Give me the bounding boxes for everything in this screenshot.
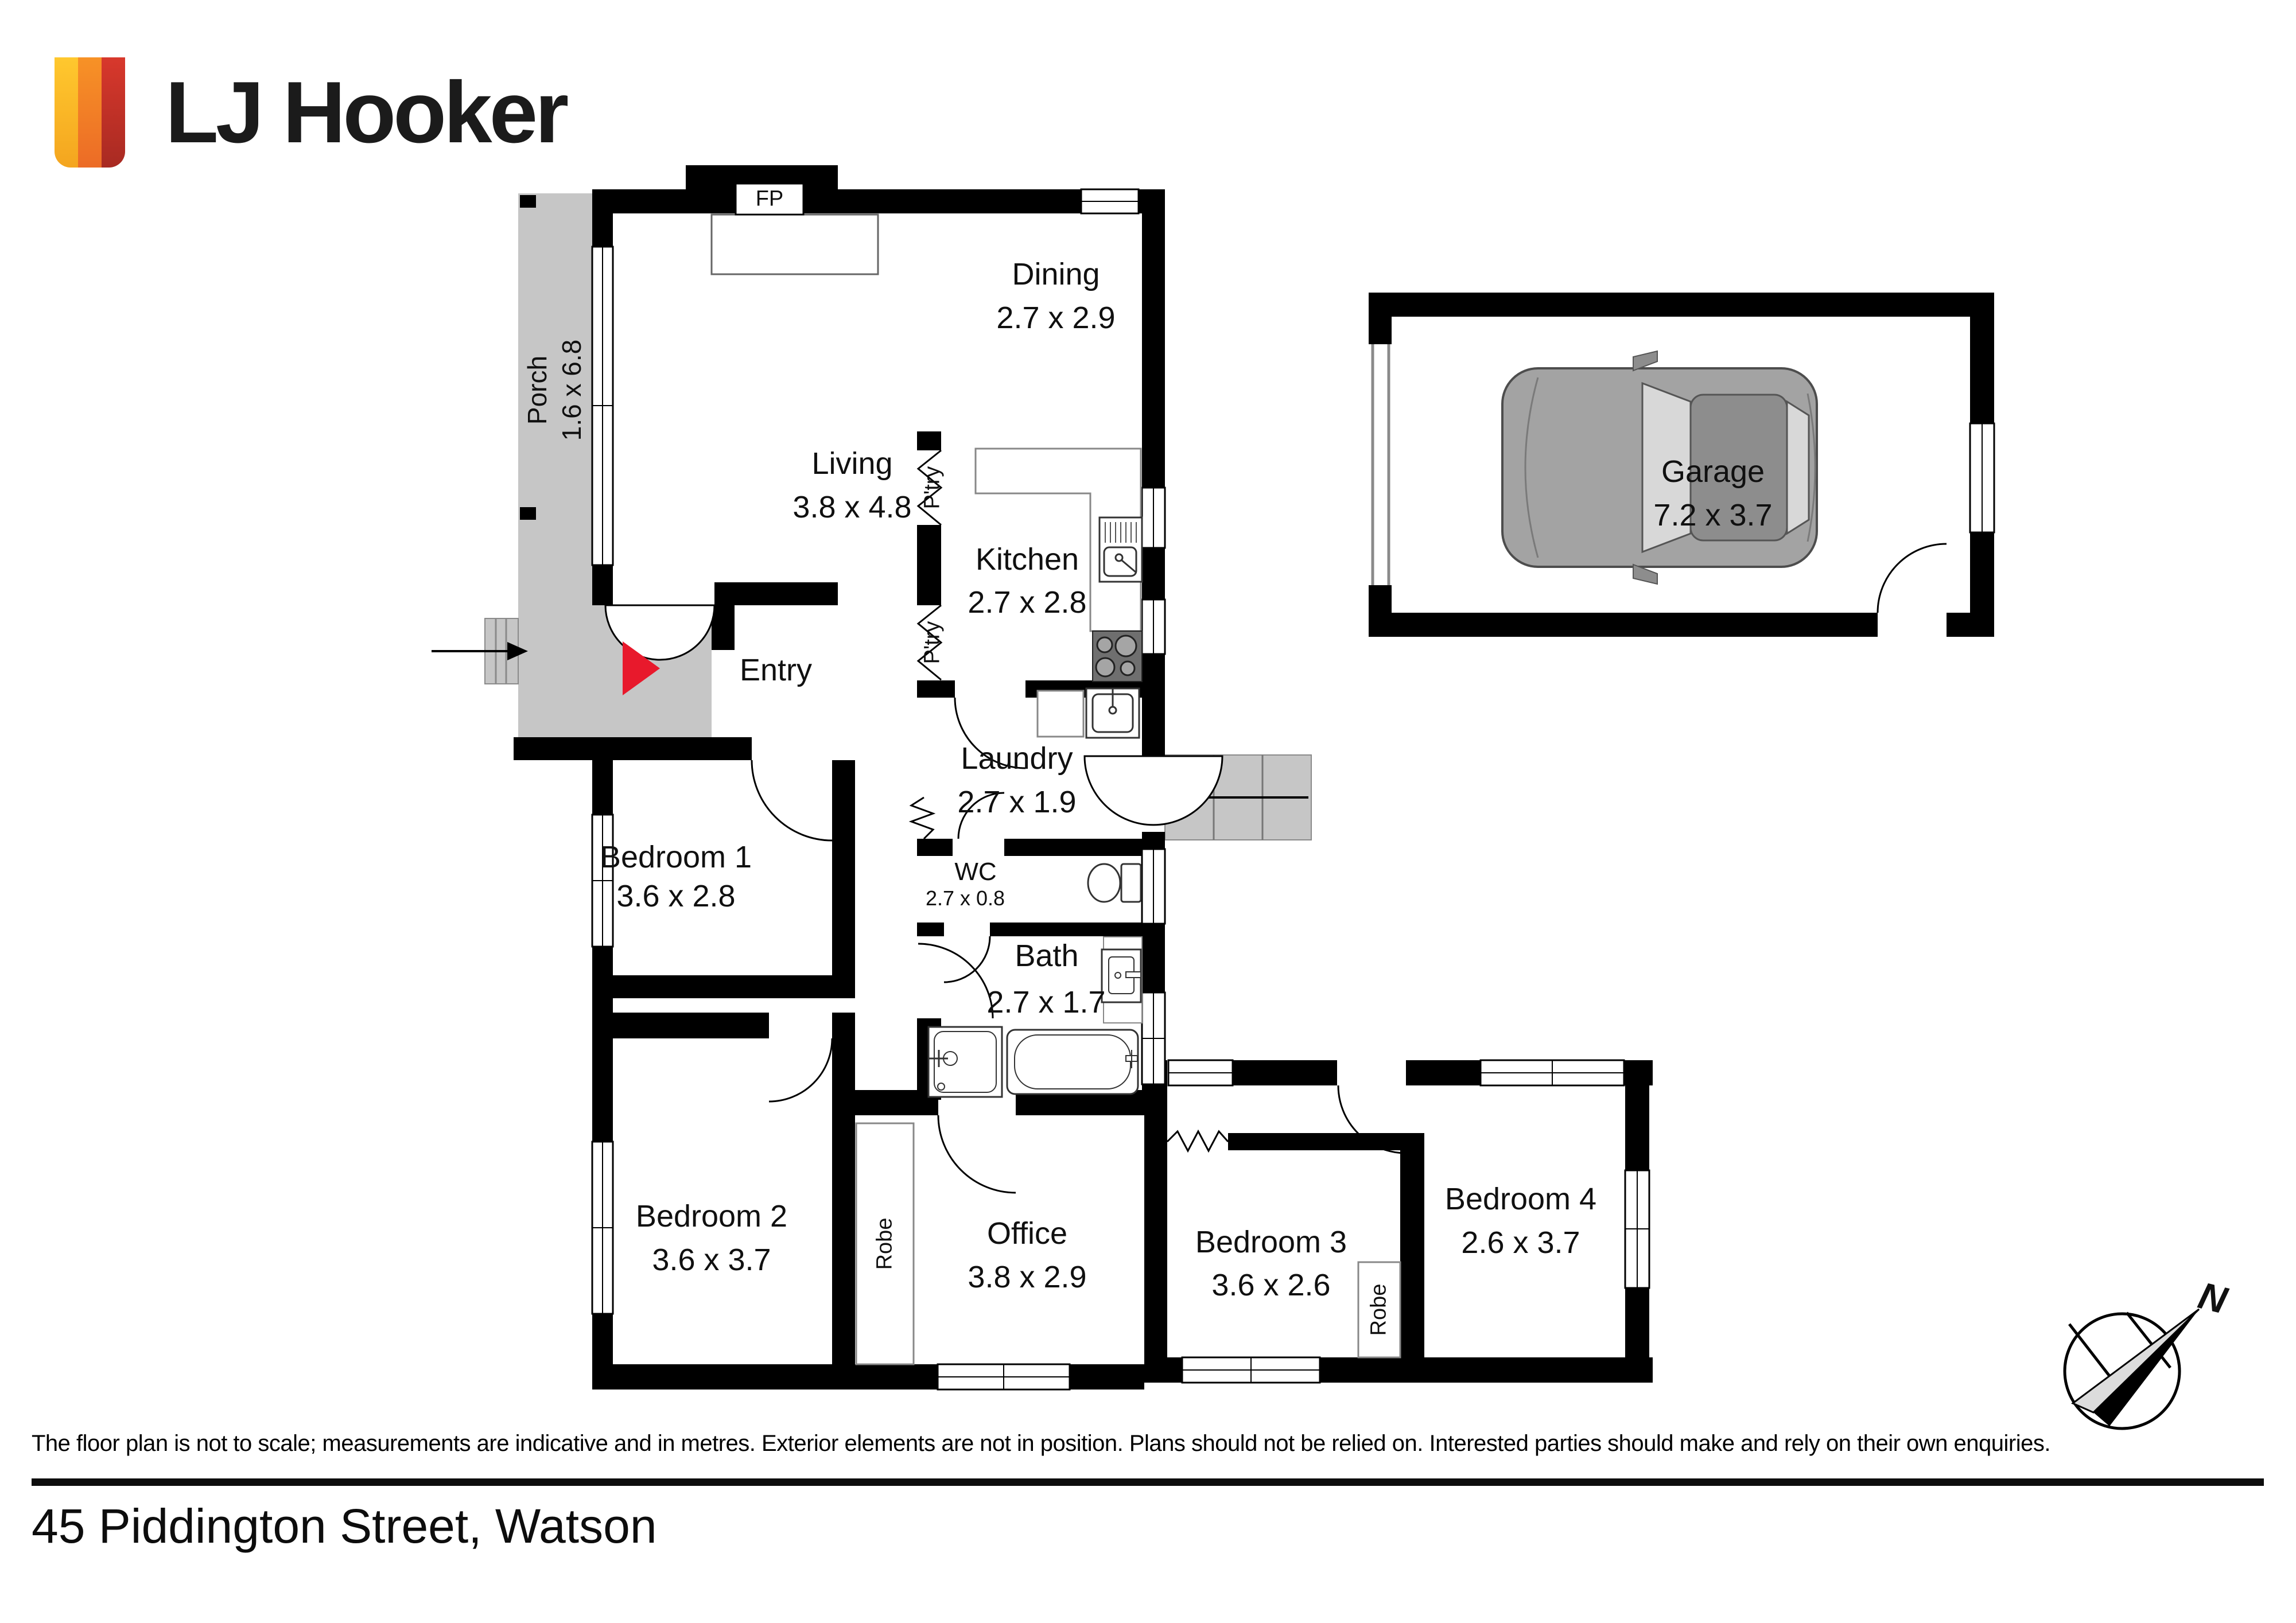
- room-dims-bath: 2.7 x 1.7: [986, 984, 1105, 1020]
- wall-top: [592, 189, 1165, 213]
- wall-kitchen-west-stub: [917, 431, 941, 450]
- porch-slab: [518, 193, 592, 737]
- window-bed1-west: [592, 815, 613, 947]
- room-label-porch: Porch 1.6 x 6.8: [520, 340, 589, 441]
- wall-bed1-east: [832, 760, 855, 998]
- window-hall-north: [1168, 1060, 1233, 1085]
- room-dims-bedroom1: 3.6 x 2.8: [616, 878, 735, 914]
- room-label-garage: Garage: [1661, 454, 1765, 489]
- wall-laundry-south: [917, 839, 953, 856]
- doors: [605, 544, 1947, 1193]
- room-label-bath: Bath: [1015, 938, 1078, 974]
- window-living-west: [592, 247, 613, 565]
- toilet-icon: [1088, 864, 1141, 902]
- room-dims-bedroom2: 3.6 x 3.7: [652, 1242, 771, 1278]
- window-office-south: [938, 1364, 1070, 1390]
- room-label-bedroom2: Bedroom 2: [636, 1198, 787, 1234]
- room-label-bedroom3: Bedroom 3: [1195, 1224, 1347, 1260]
- wall-bed4-west: [1400, 1133, 1424, 1383]
- room-label-wc: WC: [954, 858, 996, 886]
- stove-icon: [1093, 631, 1142, 682]
- room-dims-living: 3.8 x 4.8: [792, 489, 911, 525]
- wall-bed2-north: [592, 1013, 769, 1038]
- porch-post: [520, 195, 536, 208]
- wall-garage-west-stub: [1369, 317, 1392, 344]
- room-dims-garage: 7.2 x 3.7: [1653, 497, 1772, 533]
- porch-dims: 1.6 x 6.8: [554, 340, 589, 441]
- window-bath-east: [1142, 993, 1165, 1084]
- car-rear-window: [1787, 402, 1809, 534]
- door-arc-office: [938, 1115, 1016, 1193]
- wall-kitchen-west: [917, 525, 941, 605]
- room-label-entry: Entry: [740, 652, 812, 688]
- room-dims-office: 3.8 x 2.9: [968, 1259, 1086, 1295]
- wall-bed2-east: [832, 1038, 855, 1364]
- room-label-living: Living: [811, 446, 892, 481]
- wall-break-icon: [911, 797, 933, 839]
- room-label-kitchen: Kitchen: [976, 542, 1079, 577]
- garage-door: [1373, 344, 1389, 585]
- room-label-bedroom1: Bedroom 1: [600, 839, 752, 875]
- wall-laundry-south: [1004, 839, 1143, 856]
- window-garage-east: [1970, 423, 1994, 532]
- window-wc-east: [1142, 849, 1165, 924]
- room-label-bedroom4: Bedroom 4: [1445, 1181, 1596, 1217]
- car-icon: [1502, 351, 1817, 584]
- room-dims-laundry: 2.7 x 1.9: [957, 784, 1076, 820]
- disclaimer-text: The floor plan is not to scale; measurem…: [32, 1431, 2050, 1457]
- wall-garage-south: [1369, 613, 1878, 637]
- wall-bed3-west: [1144, 1115, 1167, 1383]
- footer-divider: [32, 1478, 2264, 1486]
- wall-wing-south: [1144, 1357, 1182, 1383]
- wall-wing-north: [1624, 1060, 1653, 1085]
- window-kitchen-east: [1142, 488, 1165, 548]
- wall-entry-jamb: [712, 605, 735, 650]
- window-bed3-south: [1182, 1357, 1320, 1383]
- robe-label-bed3: Robe: [1367, 1284, 1392, 1336]
- window-bed4-east: [1625, 1170, 1649, 1288]
- door-arc-bed2: [769, 1038, 832, 1102]
- wall-east: [1142, 213, 1165, 488]
- pantry-label-2: P'try: [920, 621, 945, 664]
- door-arc-bed1: [752, 760, 832, 840]
- wall-bed4-east: [1625, 1288, 1649, 1383]
- robe-label-bed2: Robe: [873, 1218, 898, 1270]
- porch-post: [520, 507, 536, 520]
- window-bed2-west: [592, 1142, 613, 1314]
- wall-bed2-north-stub: [832, 1013, 855, 1038]
- wall-bed4-east: [1625, 1085, 1649, 1170]
- room-dims-bedroom3: 3.6 x 2.6: [1211, 1267, 1330, 1303]
- window-laundry-east: [1142, 600, 1165, 654]
- washer-icon: [1038, 691, 1083, 737]
- wall-living-south: [592, 582, 605, 605]
- property-address: 45 Piddington Street, Watson: [32, 1499, 657, 1554]
- door-arc-garage: [1878, 544, 1947, 613]
- window-dining: [1081, 189, 1139, 213]
- wall-east: [1142, 548, 1165, 600]
- window-bed4-north: [1481, 1060, 1624, 1085]
- wall-wing-south: [1320, 1357, 1653, 1383]
- wall-garage-south: [1947, 613, 1994, 637]
- wall-wing-north: [1233, 1060, 1337, 1085]
- shower-icon: [928, 1027, 1002, 1097]
- room-label-laundry: Laundry: [961, 741, 1073, 776]
- room-dims-dining: 2.7 x 2.9: [996, 300, 1115, 336]
- wall-garage-east: [1970, 293, 1994, 423]
- room-label-dining: Dining: [1012, 256, 1100, 292]
- laundry-tub-icon: [1086, 688, 1139, 738]
- wall-east: [1142, 654, 1165, 756]
- wall-east: [1142, 832, 1165, 849]
- door-arc-wc-bath: [944, 936, 990, 982]
- fireplace-label: FP: [756, 187, 784, 212]
- bathtub-icon: [1007, 1030, 1138, 1094]
- wall-garage-west-stub: [1369, 585, 1392, 613]
- room-dims-wc: 2.7 x 0.8: [926, 886, 1005, 910]
- room-dims-bedroom4: 2.6 x 3.7: [1461, 1225, 1580, 1260]
- wall-east: [1142, 924, 1165, 993]
- compass-icon: [2065, 1309, 2199, 1429]
- hearth: [712, 215, 878, 274]
- wall-wc-south: [917, 923, 944, 936]
- room-dims-kitchen: 2.7 x 2.8: [968, 585, 1086, 620]
- vanity-icon: [1102, 937, 1142, 1023]
- wall-break-icon: [1167, 1131, 1228, 1151]
- wall-garage-north: [1369, 293, 1994, 317]
- wall-bed1-south: [592, 975, 855, 998]
- wall-bed1-north: [514, 737, 752, 760]
- pantry-label-1: P'try: [920, 466, 945, 509]
- floor-plan: [0, 0, 2296, 1623]
- room-label-office: Office: [987, 1216, 1067, 1251]
- porch-name: Porch: [520, 340, 554, 441]
- wall-living-south: [714, 582, 838, 605]
- wall-wing-north: [1406, 1060, 1481, 1085]
- wall-kitchen-south: [917, 680, 955, 698]
- wall-wc-south: [990, 923, 1143, 936]
- kitchen-sink-icon: [1100, 517, 1142, 582]
